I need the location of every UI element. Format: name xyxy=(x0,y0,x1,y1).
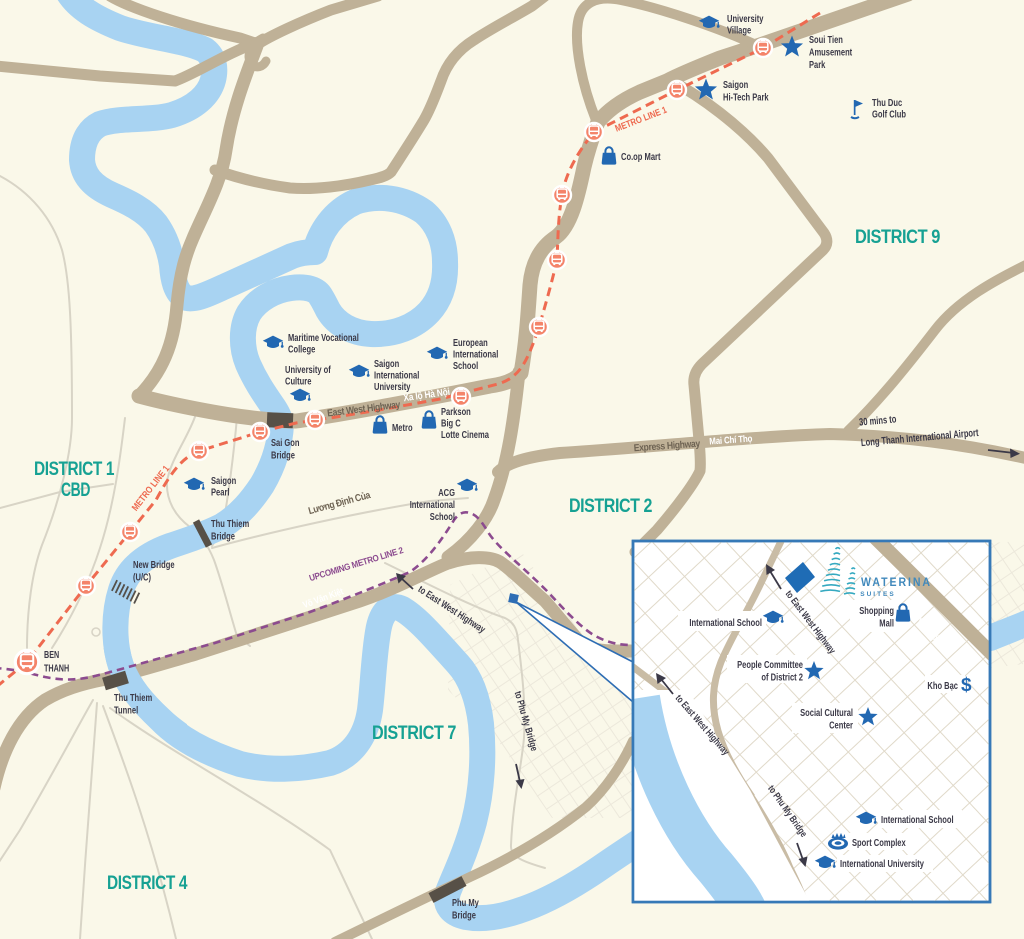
svg-text:DISTRICT 9: DISTRICT 9 xyxy=(855,227,940,248)
svg-text:Culture: Culture xyxy=(285,376,312,388)
svg-text:School: School xyxy=(430,511,455,523)
svg-text:Park: Park xyxy=(809,59,826,71)
svg-text:School: School xyxy=(453,360,478,372)
svg-text:Bridge: Bridge xyxy=(452,910,476,922)
svg-text:International: International xyxy=(374,370,419,382)
svg-text:Metro: Metro xyxy=(392,422,413,434)
svg-text:International University: International University xyxy=(840,858,924,870)
svg-text:Pearl: Pearl xyxy=(211,487,230,499)
svg-text:Amusement: Amusement xyxy=(809,47,853,59)
svg-text:Sport Complex: Sport Complex xyxy=(852,837,906,849)
svg-text:People Committee: People Committee xyxy=(737,659,803,671)
svg-text:Hi-Tech Park: Hi-Tech Park xyxy=(723,92,769,104)
svg-text:Maritime Vocational: Maritime Vocational xyxy=(288,332,359,344)
svg-text:New Bridge: New Bridge xyxy=(133,559,175,571)
svg-text:BEN: BEN xyxy=(44,650,59,661)
svg-text:University: University xyxy=(727,13,764,25)
svg-text:Co.op Mart: Co.op Mart xyxy=(621,151,661,163)
svg-text:Parkson: Parkson xyxy=(441,406,471,418)
svg-text:$: $ xyxy=(961,675,972,696)
svg-text:Center: Center xyxy=(829,720,853,732)
svg-text:(U/C): (U/C) xyxy=(133,572,151,584)
svg-text:Village: Village xyxy=(727,25,751,37)
svg-text:Saigon: Saigon xyxy=(723,79,748,91)
svg-text:Social Cultural: Social Cultural xyxy=(800,707,853,719)
svg-text:International School: International School xyxy=(689,617,762,629)
svg-text:Big C: Big C xyxy=(441,418,461,430)
svg-text:Soui Tien: Soui Tien xyxy=(809,34,843,46)
svg-text:Thu Duc: Thu Duc xyxy=(872,97,902,109)
svg-text:DISTRICT 4: DISTRICT 4 xyxy=(107,873,188,894)
svg-text:ACG: ACG xyxy=(438,487,455,499)
svg-text:University of: University of xyxy=(285,364,331,376)
svg-text:Shopping: Shopping xyxy=(859,605,894,617)
svg-text:Phu My: Phu My xyxy=(452,897,479,909)
svg-text:Kho Bạc: Kho Bạc xyxy=(927,680,958,692)
svg-text:WATERINA: WATERINA xyxy=(861,575,932,589)
svg-text:of District 2: of District 2 xyxy=(761,672,803,684)
svg-text:DISTRICT 1: DISTRICT 1 xyxy=(34,459,115,480)
svg-text:Thu Thiem: Thu Thiem xyxy=(114,692,152,704)
svg-text:Lotte Cinema: Lotte Cinema xyxy=(441,429,489,441)
svg-text:Bridge: Bridge xyxy=(211,531,235,543)
svg-text:THANH: THANH xyxy=(44,664,69,675)
svg-text:International School: International School xyxy=(881,814,954,826)
svg-text:CBD: CBD xyxy=(61,480,90,501)
svg-text:University: University xyxy=(374,381,411,393)
svg-text:European: European xyxy=(453,337,488,349)
svg-text:Bridge: Bridge xyxy=(271,450,295,462)
svg-text:Mall: Mall xyxy=(879,618,894,630)
svg-text:Tunnel: Tunnel xyxy=(114,705,138,717)
svg-text:International: International xyxy=(453,349,498,361)
svg-text:Golf Club: Golf Club xyxy=(872,109,906,121)
svg-text:Sai Gon: Sai Gon xyxy=(271,437,300,449)
svg-text:DISTRICT 7: DISTRICT 7 xyxy=(372,723,456,744)
svg-text:International: International xyxy=(410,499,455,511)
svg-text:College: College xyxy=(288,344,315,356)
svg-text:Saigon: Saigon xyxy=(211,475,236,487)
svg-text:Thu Thiem: Thu Thiem xyxy=(211,518,249,530)
svg-text:SUITES: SUITES xyxy=(860,591,895,598)
svg-text:Saigon: Saigon xyxy=(374,358,399,370)
svg-text:DISTRICT 2: DISTRICT 2 xyxy=(569,496,652,517)
